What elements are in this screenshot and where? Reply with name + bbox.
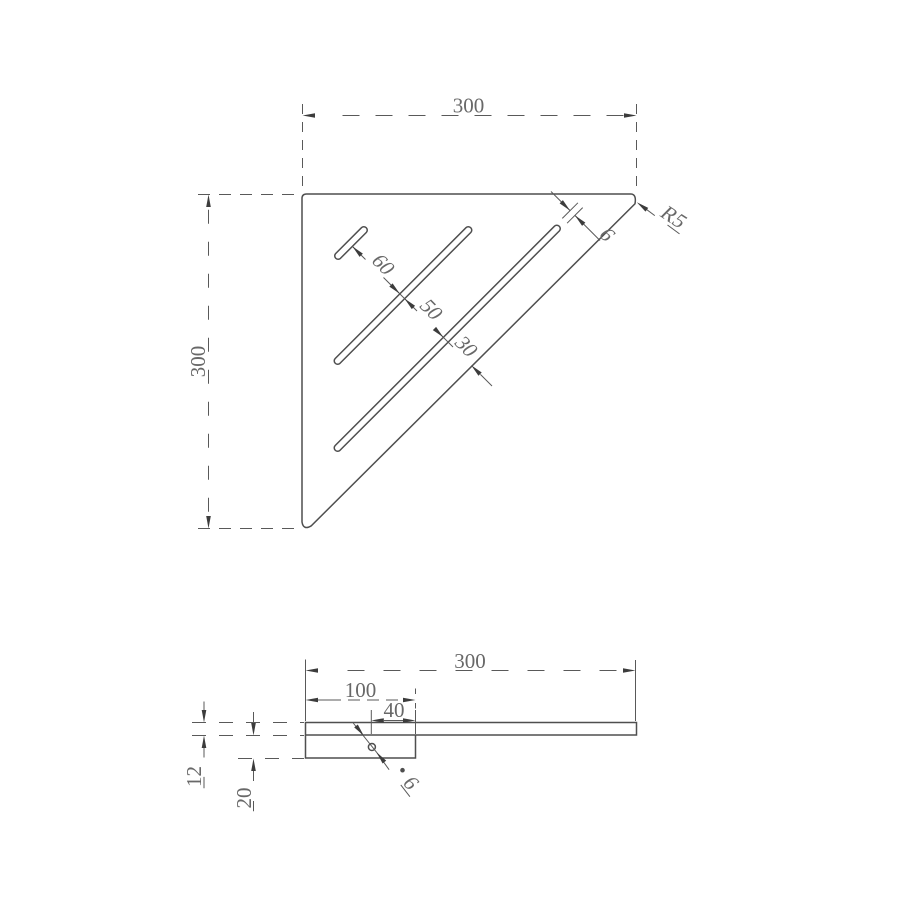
svg-text:12: 12 xyxy=(182,766,206,787)
svg-text:300: 300 xyxy=(186,346,210,378)
svg-text:300: 300 xyxy=(453,94,485,118)
svg-text:20: 20 xyxy=(232,788,256,809)
svg-text:100: 100 xyxy=(345,678,377,702)
svg-text:40: 40 xyxy=(384,698,405,722)
svg-text:300: 300 xyxy=(454,649,486,673)
